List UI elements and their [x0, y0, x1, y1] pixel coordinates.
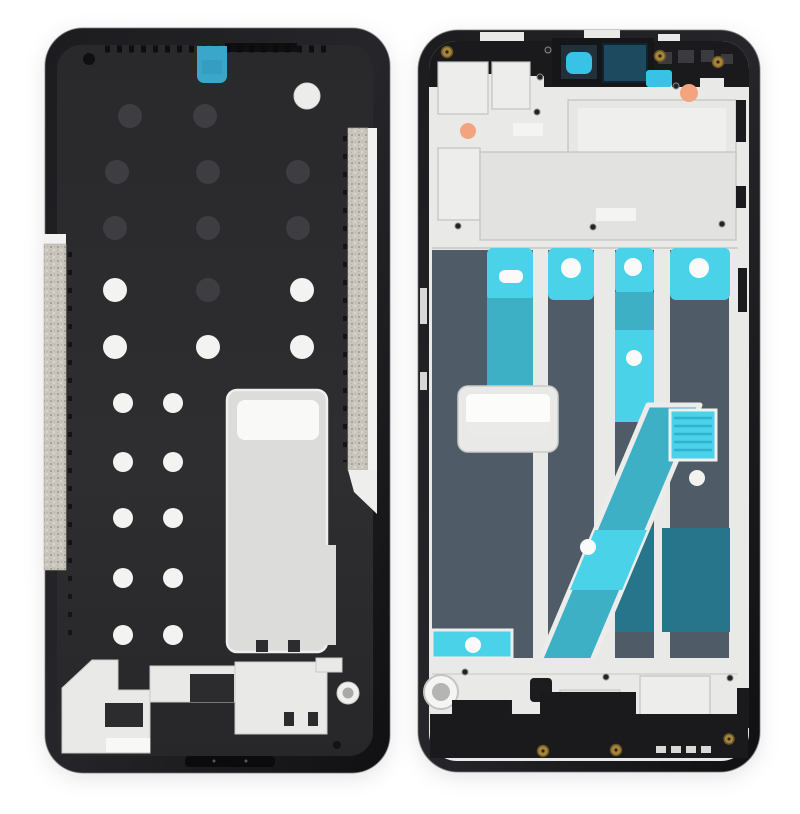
display-window — [432, 248, 738, 663]
white-cutout-box — [458, 386, 558, 452]
camera-hole-cyan-film — [566, 52, 592, 74]
earpiece-camera-hole-icon — [83, 53, 95, 65]
right-adhesive-strip — [345, 128, 377, 514]
orange-adhesive-dot — [680, 84, 698, 102]
mic-hole — [333, 741, 341, 749]
sensor-window-navy — [603, 44, 647, 82]
strip1-body — [487, 298, 533, 390]
ribbed-flex-connector — [670, 410, 716, 460]
teal-panel-right — [662, 528, 730, 632]
bottom-rail — [430, 658, 740, 674]
top-dark-patch — [225, 43, 297, 52]
product-photo — [0, 0, 800, 814]
orange-adhesive-dot — [460, 123, 476, 139]
bottom-speaker-slot — [185, 756, 275, 767]
front-housing-front-view — [44, 28, 390, 773]
cyan-pull-sticker — [197, 46, 227, 83]
cyan-scrap-piece — [646, 70, 672, 87]
sensor-hole-white — [294, 83, 320, 109]
center-silver-plate — [227, 390, 336, 652]
front-housing-back-view — [418, 30, 760, 772]
white-dot-strip4 — [689, 470, 705, 486]
bottom-mic-ring-hole — [337, 682, 359, 704]
bottom-left-cyan-segment — [432, 630, 512, 658]
